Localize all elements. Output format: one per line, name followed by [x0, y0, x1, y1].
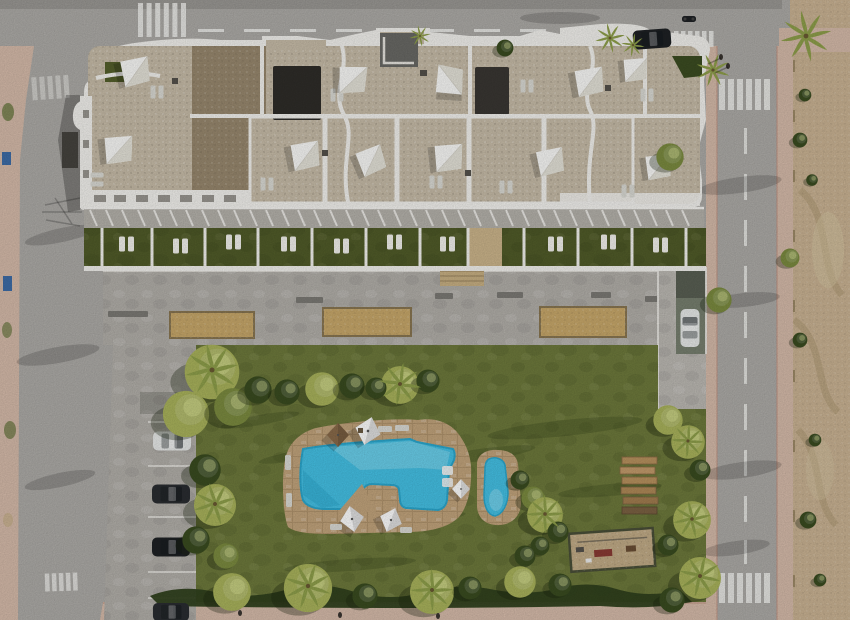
aerial-photo	[0, 0, 850, 620]
grain-overlay	[0, 0, 850, 620]
aerial-render-svg	[0, 0, 850, 620]
